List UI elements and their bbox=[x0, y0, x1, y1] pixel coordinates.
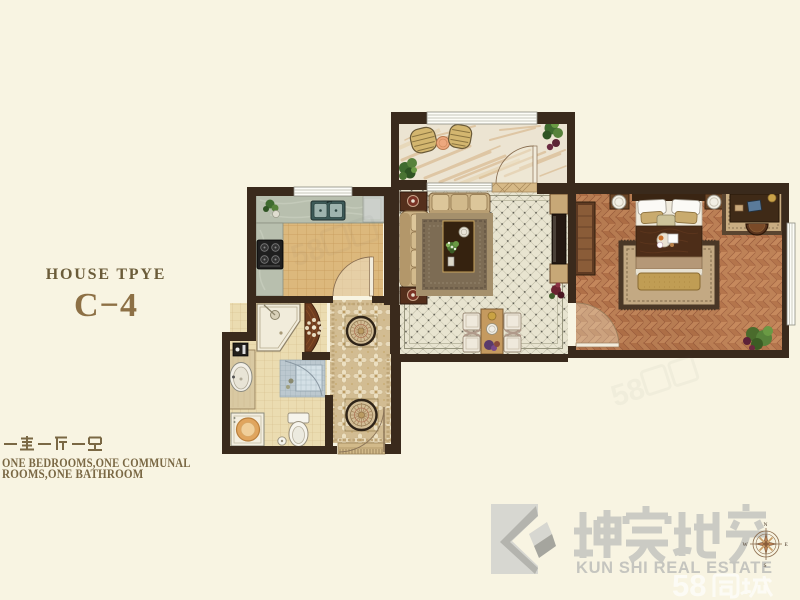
svg-text:E: E bbox=[785, 542, 789, 548]
svg-text:58: 58 bbox=[672, 568, 706, 600]
svg-text:W: W bbox=[743, 542, 749, 548]
svg-text:N: N bbox=[764, 522, 768, 528]
